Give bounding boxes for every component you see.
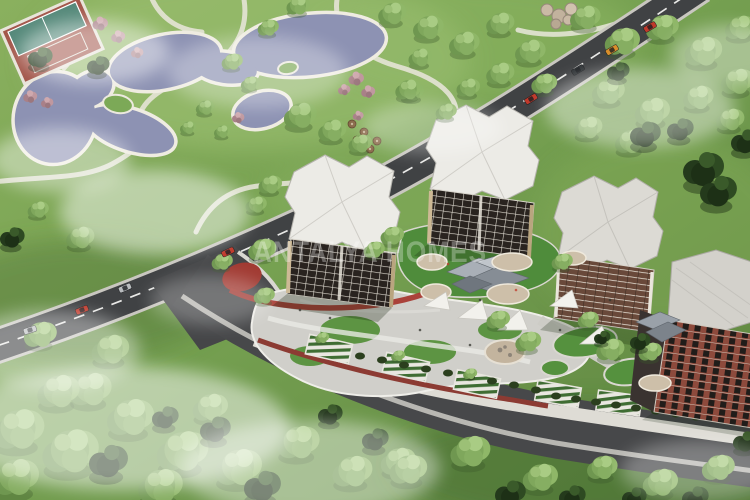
aerial-render: ANTALYA HOMES: [0, 0, 750, 500]
watermark: ANTALYA HOMES: [253, 236, 487, 269]
lawn-oval: [541, 360, 569, 376]
render-image: ANTALYA HOMES: [0, 0, 750, 500]
